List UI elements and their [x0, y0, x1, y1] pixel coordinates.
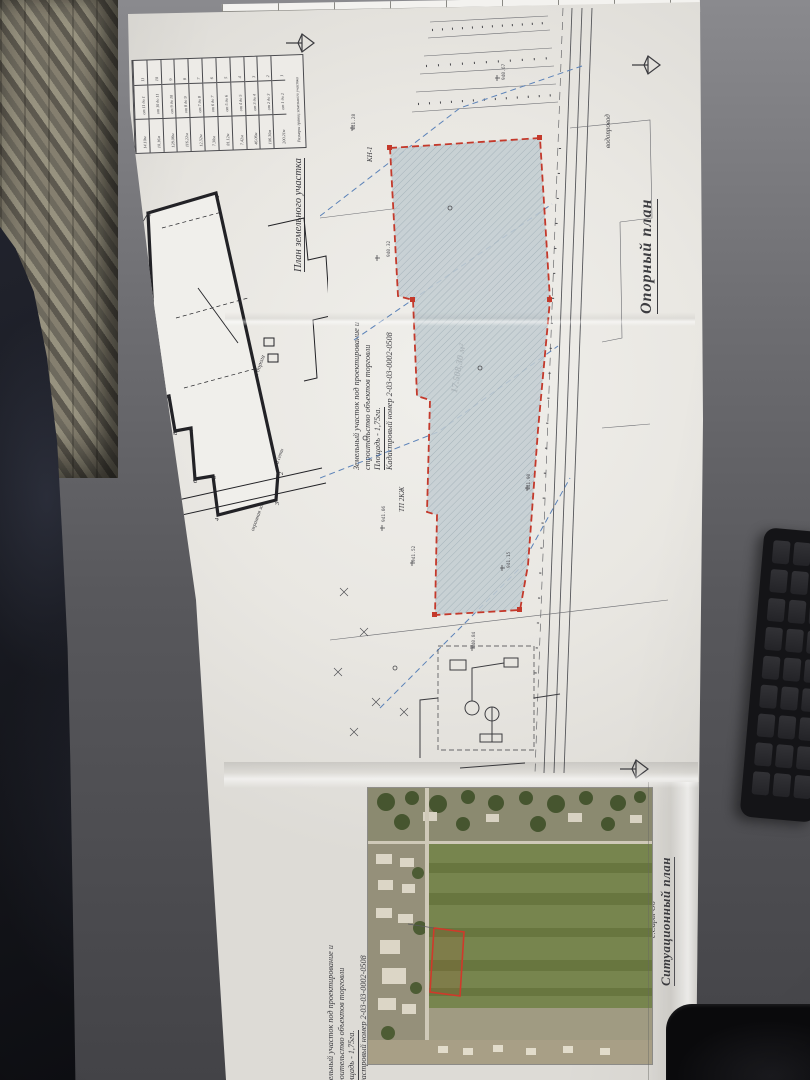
elevation-label: 940.84 [472, 632, 477, 648]
legend-value: от 4 до 5 [238, 94, 244, 111]
legend-cell-n: 1 [272, 56, 286, 80]
keyboard-key [803, 659, 810, 683]
legend-value: 11 [140, 78, 145, 82]
legend-value: 6 [210, 77, 215, 79]
keyboard-key [796, 746, 810, 770]
vertex-number: 4 [214, 518, 221, 521]
legend-cell-len: 10.16м [149, 118, 163, 153]
vertex-number: 9 [166, 396, 173, 399]
legend-value: 116.22м [184, 133, 189, 147]
legend-value: от 3 до 4 [252, 94, 258, 111]
keyboard-key [798, 717, 810, 741]
elevation-label: 941.15 [507, 552, 512, 568]
legend-value: от 6 до 7 [210, 95, 216, 112]
legend-value: 14.10м [142, 136, 147, 148]
keyboard-key [751, 771, 770, 795]
legend-cell-span: от 2 до 3 [259, 80, 273, 115]
keyboard-key [777, 715, 796, 739]
legend-value: 7.30м [212, 136, 217, 146]
keyboard-key [801, 688, 810, 712]
legend-value: от 11 до 1 [141, 96, 147, 115]
vertex-number: 1 [214, 195, 221, 198]
legend-value: 8 [182, 78, 187, 80]
elevation-label: 940.32 [387, 241, 392, 257]
legend-value: 106.30м [267, 130, 272, 144]
annotation2-line2: строительство объектов торговли [337, 945, 348, 1080]
legend-value: 128.06м [170, 133, 175, 147]
legend-value: 10.16м [156, 136, 161, 148]
legend-cell-len: 106.30м [260, 114, 274, 149]
vertex-number: 8 [172, 432, 179, 435]
legend-cell-n: 6 [202, 58, 216, 82]
elevation-label: 940.67 [502, 64, 507, 80]
keyboard-key [793, 775, 810, 799]
legend-cell-span: от 11 до 1 [134, 84, 148, 119]
legend-cell-span: от 6 до 7 [203, 82, 217, 117]
legend-cell-span: от 1 до 2 [272, 79, 286, 114]
legend-value: 7 [196, 77, 201, 79]
legend-header-column: Размеры границ земельного участка [284, 55, 305, 148]
vertex-number: 10 [156, 398, 163, 405]
legend-cell-len: 200.21м [274, 113, 288, 148]
keyboard-key [767, 598, 786, 622]
elevation-label: 941.06 [382, 506, 387, 522]
legend-value: 12.32м [198, 134, 203, 146]
legend-value: 2 [265, 75, 270, 77]
legend-value: 9 [168, 78, 173, 80]
vertex-number: 3 [274, 502, 281, 505]
legend-value: 46.06м [253, 133, 258, 145]
keyboard-key [759, 685, 778, 709]
legend-value: 1 [279, 74, 284, 76]
legend-value: 5 [223, 76, 228, 78]
vertex-number: 5 [211, 476, 218, 479]
keyboard-key [762, 656, 781, 680]
legend-cell-span: от 5 до 6 [217, 81, 231, 116]
vertex-number: 7 [188, 428, 195, 431]
legend-value: от 8 до 9 [183, 96, 189, 113]
legend-table: Размеры границ земельного участка1от 1 д… [131, 54, 306, 154]
keyboard-key [788, 600, 807, 624]
elevation-label: 941.28 [352, 114, 357, 130]
legend-cell-n: 8 [175, 59, 189, 83]
legend-value: 10 [154, 77, 159, 81]
chair-armrest [666, 1004, 810, 1080]
legend-cell-span: от 7 до 8 [189, 82, 203, 117]
north-arrow-icon [284, 30, 318, 56]
legend-cell-len: 128.06м [163, 117, 177, 152]
keyboard-key [780, 686, 799, 710]
legend-cell-n: 5 [216, 58, 230, 82]
legend-cell-n: 3 [244, 57, 258, 81]
parcel-plan-drawing [118, 168, 328, 538]
keyboard-key [793, 542, 810, 566]
keyboard-key [764, 627, 783, 651]
keyboard-key [783, 657, 802, 681]
legend-value: от 2 до 3 [265, 93, 271, 110]
legend-cell-span: от 8 до 9 [176, 83, 190, 118]
elevation-label: 941.90 [527, 474, 532, 490]
legend-value: от 10 до 11 [155, 93, 161, 114]
vertex-number: 2 [278, 472, 285, 475]
legend-cell-n: 4 [230, 57, 244, 81]
legend-cell-len: 81.12м [218, 115, 232, 150]
legend-value: 4 [237, 76, 242, 78]
legend-cell-span: от 4 до 5 [231, 81, 245, 116]
legend-value: от 1 до 2 [279, 93, 285, 110]
keyboard-key [757, 713, 776, 737]
keyboard-key [775, 744, 794, 768]
legend-cell-n: 10 [147, 60, 161, 84]
legend-cell-span: от 9 до 10 [162, 83, 176, 118]
legend-value: 7.42м [239, 135, 244, 145]
annotation2-line3: Площадь - 1,75га. [347, 1030, 359, 1080]
main-plan-drawing [320, 8, 672, 778]
legend-cell-n: 9 [161, 60, 175, 84]
elevation-label: 941.52 [412, 546, 417, 562]
legend-cell-len: 7.30м [205, 116, 219, 151]
keyboard-key [754, 742, 773, 766]
legend-cell-len: 12.32м [191, 116, 205, 151]
legend-cell-n: 7 [189, 59, 203, 83]
legend-value: 3 [251, 75, 256, 77]
keyboard [740, 527, 810, 823]
keyboard-key [806, 630, 810, 654]
legend-cell-len: 14.10м [135, 118, 149, 153]
legend-value: от 5 до 6 [224, 95, 230, 112]
legend-cell-span: от 3 до 4 [245, 80, 259, 115]
legend-cell-len: 116.22м [177, 117, 191, 152]
legend-cell-span: от 10 до 11 [148, 84, 162, 119]
legend-value: от 7 до 8 [196, 96, 202, 113]
vertex-number: 11 [146, 210, 153, 216]
legend-value: от 9 до 10 [169, 95, 175, 114]
legend-cell-len: 7.42м [232, 115, 246, 150]
desk-photo-scene: Опорный план Ситуационный план с.Сары-Об… [0, 0, 810, 1080]
keyboard-key [785, 629, 804, 653]
vertex-number: 6 [192, 480, 199, 483]
fold-crease-lower [224, 762, 698, 788]
keyboard-key [772, 540, 791, 564]
legend-value: 200.21м [281, 130, 286, 144]
legend-value: 81.12м [225, 134, 230, 146]
annotation2-line1: Земельный участок под проектирование и [326, 945, 337, 1080]
keyboard-key [790, 571, 809, 595]
legend-header-text: Размеры границ земельного участка [294, 78, 301, 143]
legend-cell-len: 46.06м [246, 114, 260, 149]
drawing-sheet: Опорный план Ситуационный план с.Сары-Об… [0, 0, 810, 1080]
satellite-image [368, 788, 652, 1064]
keyboard-key [772, 773, 791, 797]
legend-cell-n: 11 [133, 61, 147, 85]
fold-crease-middle [225, 312, 695, 326]
legend-cell-n: 2 [258, 56, 272, 80]
keyboard-key [769, 569, 788, 593]
